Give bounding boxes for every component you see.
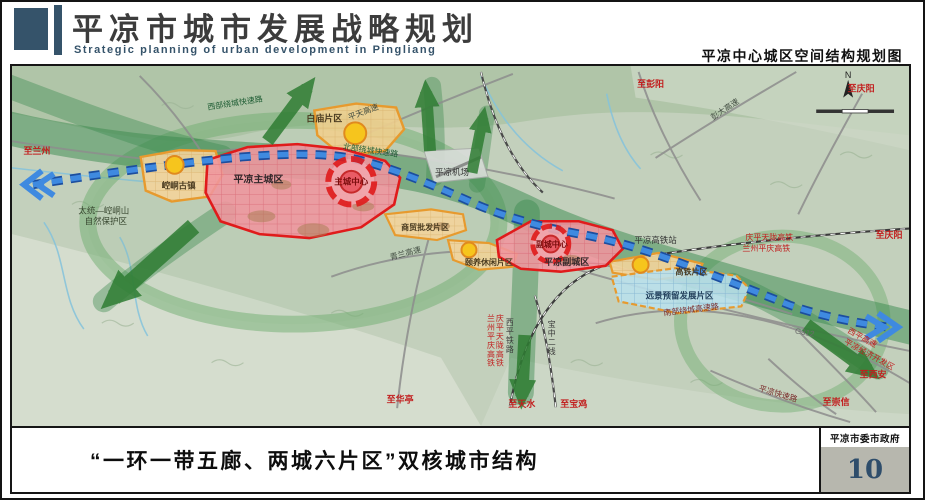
map-label: 至宝鸡 [560,398,587,409]
map-label: 至西安 [860,369,887,380]
map-label: 太统—崆峒山 [78,205,129,215]
logo-square [14,8,48,50]
map-label: 远景预留发展片区 [646,290,714,300]
corridor-arrow-north-1 [426,92,430,151]
structure-plan-map: N 至兰州西部绕城快速路白庙片区平天高速北部绕城快速路至彭阳彭大高速至庆阳平凉机… [12,66,909,426]
map-label: 西平铁路 [506,318,514,354]
map-label: 庆平天陇高铁 [745,232,793,242]
plan-document-page: 平凉市城市发展战略规划 Strategic planning of urban … [0,0,925,500]
map-label: 至兰州 [23,145,50,156]
page-subtitle-english: Strategic planning of urban development … [74,44,437,56]
map-label: 至庆阳 [876,229,903,240]
map-label: 至庆阳 [848,83,875,94]
map-label: 平凉高铁站 [634,235,677,245]
map-label: 至华亭 [387,393,414,404]
caption-bar: “一环一带五廊、两城六片区”双核城市结构 平凉市委市政府 10 [12,428,909,492]
map-label: 高铁片区 [676,267,708,277]
map-sheet-title: 平凉中心城区空间结构规划图 [702,46,904,66]
map-label: 崆峒古镇 [162,181,196,191]
page-number: 10 [847,455,883,485]
map-label: 兰州平庆高铁 [487,313,495,367]
map-label: 颐养休闲片区 [465,257,513,267]
page-number-background: 10 [821,447,909,492]
map-label: 平凉机场 [435,167,469,177]
agency-label: 平凉市委市政府 [821,428,909,447]
map-label: 宝中二线 [548,319,556,356]
map-label: 至崇信 [823,396,850,407]
map-area: N 至兰州西部绕城快速路白庙片区平天高速北部绕城快速路至彭阳彭大高速至庆阳平凉机… [12,66,909,428]
map-label: 平凉副城区 [544,256,589,267]
map-label: 自然保护区 [85,216,128,226]
map-label: 白庙片区 [306,112,342,123]
page-number-box: 平凉市委市政府 10 [819,428,909,492]
map-label: 副城中心 [536,239,568,249]
map-label: 平凉主城区 [234,173,284,186]
logo-bar [54,5,62,55]
scale-bar [816,110,894,113]
map-label: 庆平天陇高铁 [496,313,504,367]
map-label: 商贸批发片区 [401,222,449,232]
content-frame: N 至兰州西部绕城快速路白庙片区平天高速北部绕城快速路至彭阳彭大高速至庆阳平凉机… [10,64,911,494]
compass-n-label: N [845,70,851,80]
map-label: 主城中心 [334,177,368,187]
map-label: 至彭阳 [637,78,664,89]
map-label: 至天水 [508,398,536,409]
corridor-arrow-south [522,335,525,396]
map-label: 兰州平庆高铁 [742,243,790,253]
structure-caption: “一环一带五廊、两城六片区”双核城市结构 [90,445,539,475]
page-title: 平凉市城市发展战略规划 [72,4,479,49]
